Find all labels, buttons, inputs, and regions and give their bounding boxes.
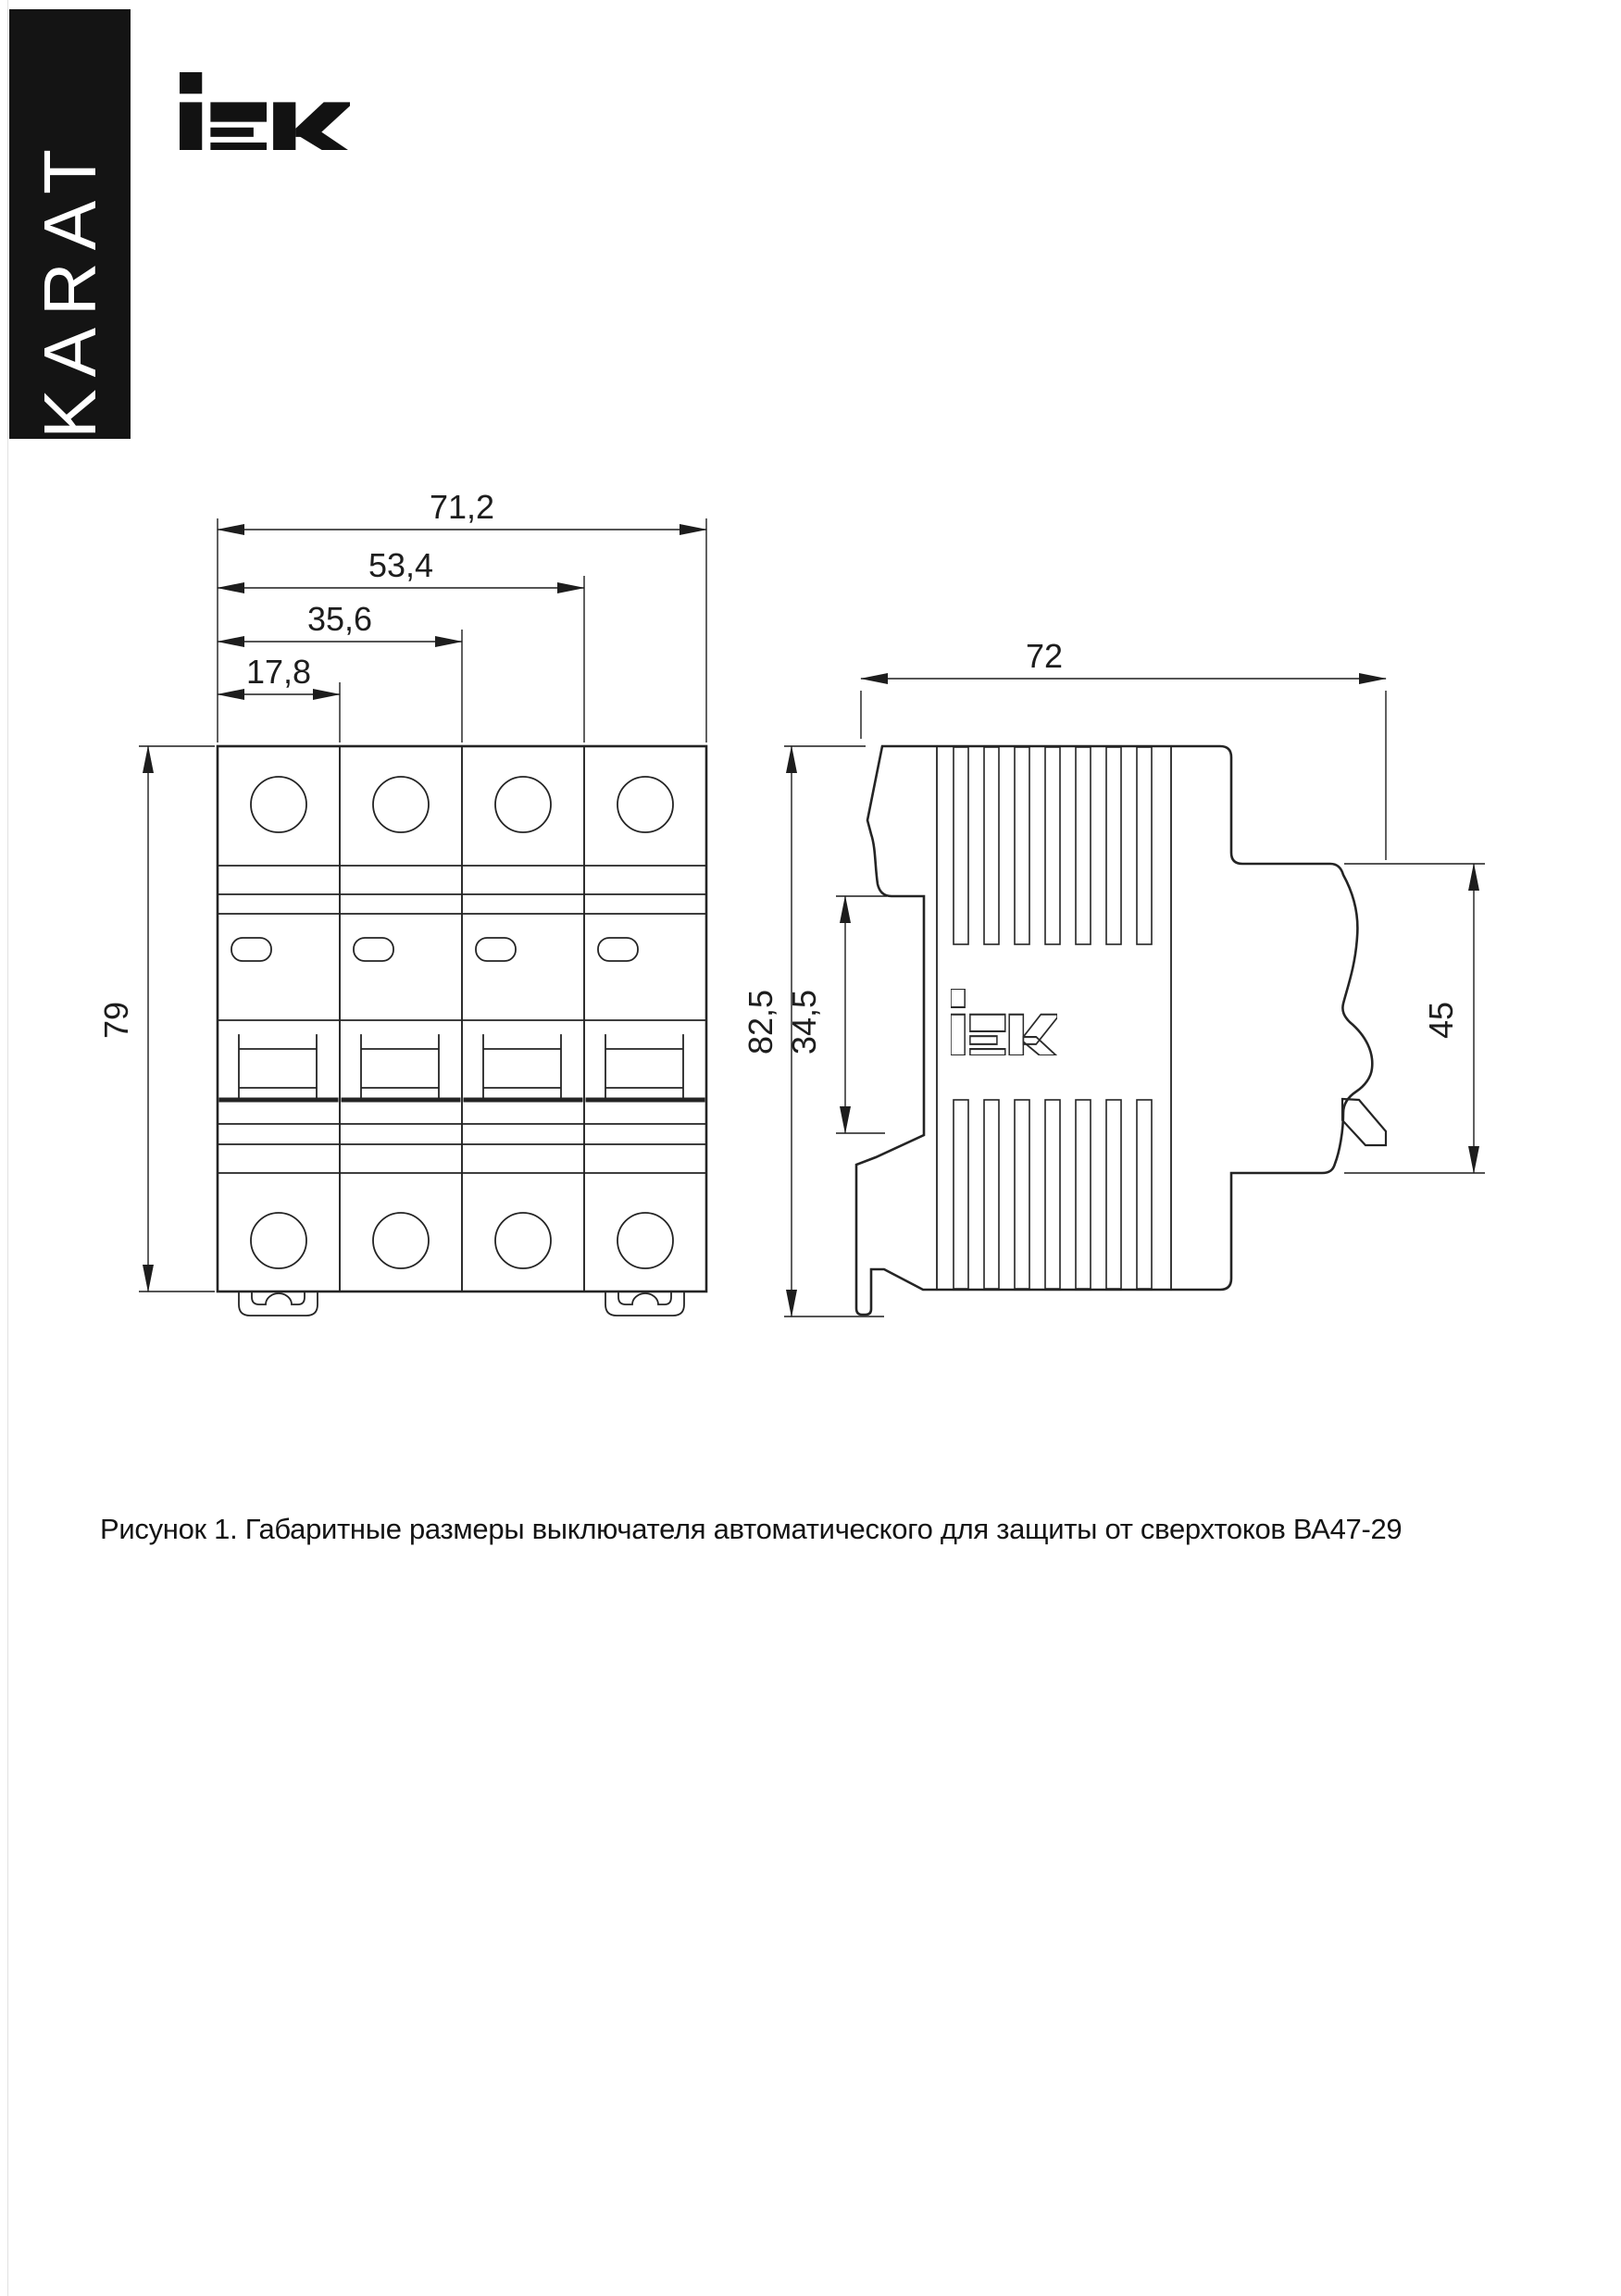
side-body-outline (856, 746, 1372, 1315)
dimension-drawing: 71,2 53,4 35,6 17,8 79 (0, 0, 1621, 2296)
dim-label-width-2pole: 35,6 (307, 600, 372, 638)
height-extension-lines (139, 746, 215, 1291)
terminal-zone-extension-lines (1344, 864, 1485, 1173)
iek-logo (180, 72, 350, 150)
iek-embossed-logo (951, 989, 1057, 1055)
figure-caption: Рисунок 1. Габаритные размеры выключател… (100, 1513, 1544, 1546)
front-view (218, 746, 706, 1316)
dim-label-width-3pole: 53,4 (368, 546, 433, 584)
side-view (856, 746, 1386, 1315)
vent-slots-top (954, 747, 1152, 944)
document-page: KARAT (0, 0, 1621, 2296)
terminal-clamp-flag (1342, 1099, 1386, 1145)
dim-label-depth: 72 (1026, 637, 1063, 675)
dim-label-terminal-zone: 45 (1422, 1002, 1460, 1039)
vent-slots-bottom (954, 1100, 1152, 1289)
pole-dividers (340, 746, 584, 1291)
extension-lines (218, 518, 706, 742)
dim-label-din-recess: 34,5 (785, 990, 823, 1054)
din-recess-extension-lines (836, 896, 887, 1133)
dim-label-width-1pole: 17,8 (246, 653, 311, 691)
marking-windows (231, 938, 638, 961)
side-dimensions (784, 679, 1485, 1316)
depth-extension-lines (861, 691, 1386, 860)
face-panel-lines (937, 746, 1171, 1290)
din-rail-clips (239, 1291, 684, 1316)
dim-label-height-total: 82,5 (742, 990, 779, 1054)
front-dimensions (139, 518, 706, 1291)
dim-label-height: 79 (97, 1002, 135, 1039)
dim-label-width-total: 71,2 (430, 488, 494, 526)
